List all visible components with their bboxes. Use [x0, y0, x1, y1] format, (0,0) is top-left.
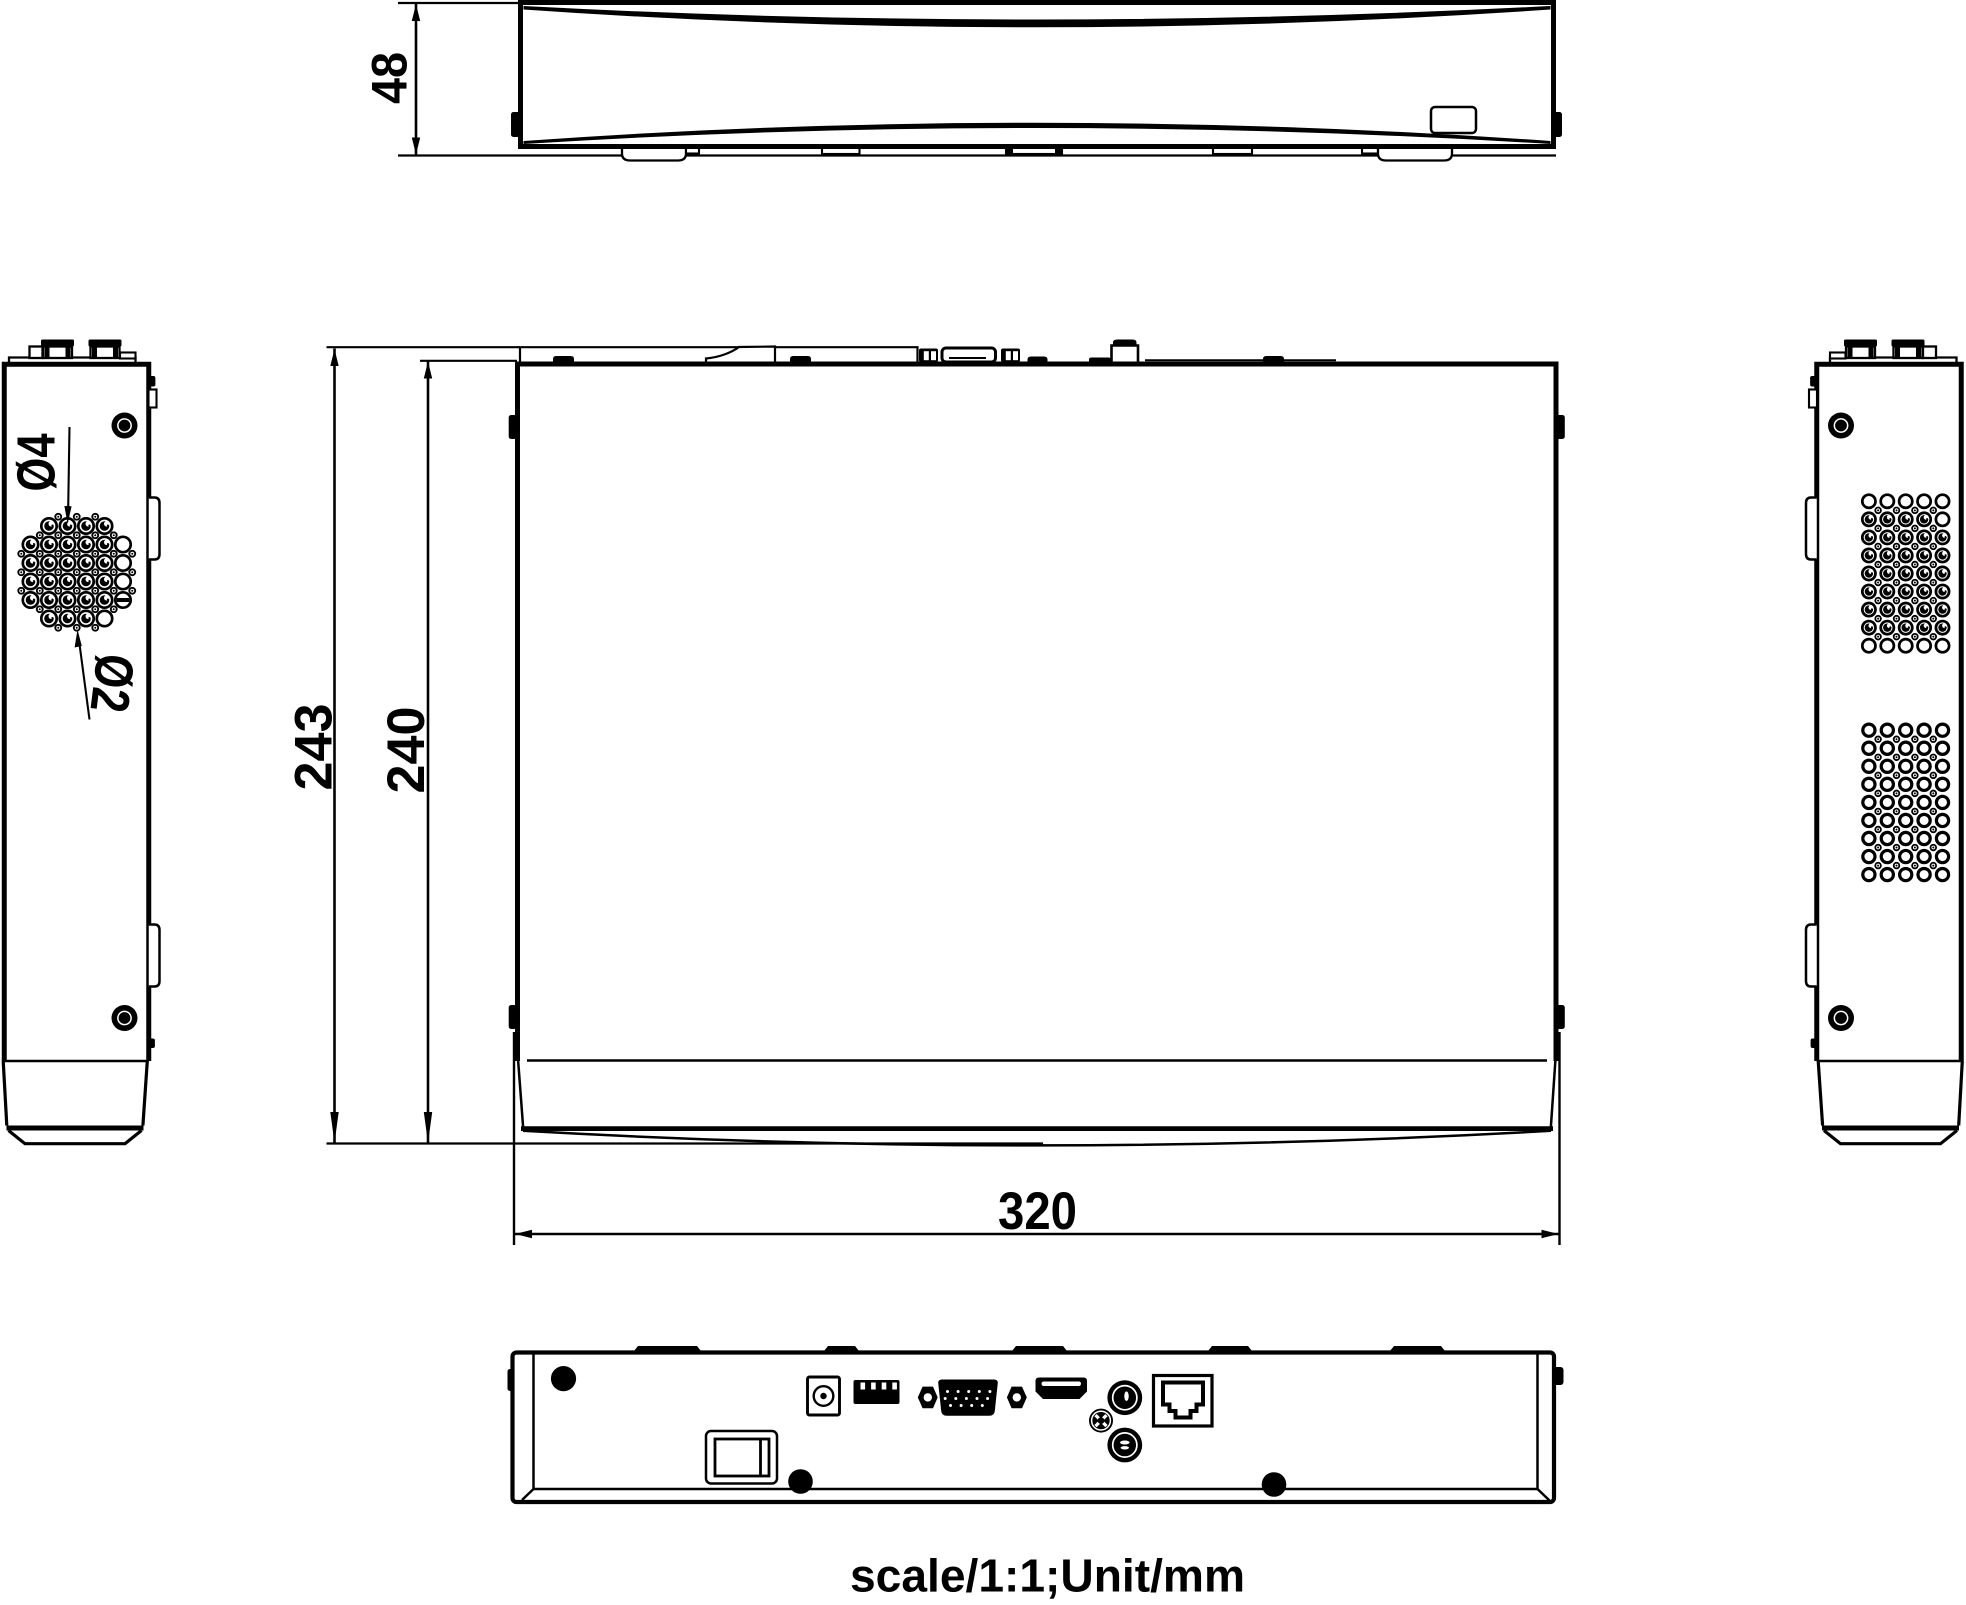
svg-text:243: 243 [285, 704, 344, 791]
svg-text:Ø4: Ø4 [7, 434, 67, 492]
svg-text:scale/1:1;Unit/mm: scale/1:1;Unit/mm [850, 1550, 1245, 1602]
svg-text:240: 240 [377, 707, 436, 794]
svg-text:320: 320 [998, 1182, 1077, 1241]
svg-text:48: 48 [362, 52, 418, 104]
svg-text:Ø2: Ø2 [79, 651, 146, 716]
